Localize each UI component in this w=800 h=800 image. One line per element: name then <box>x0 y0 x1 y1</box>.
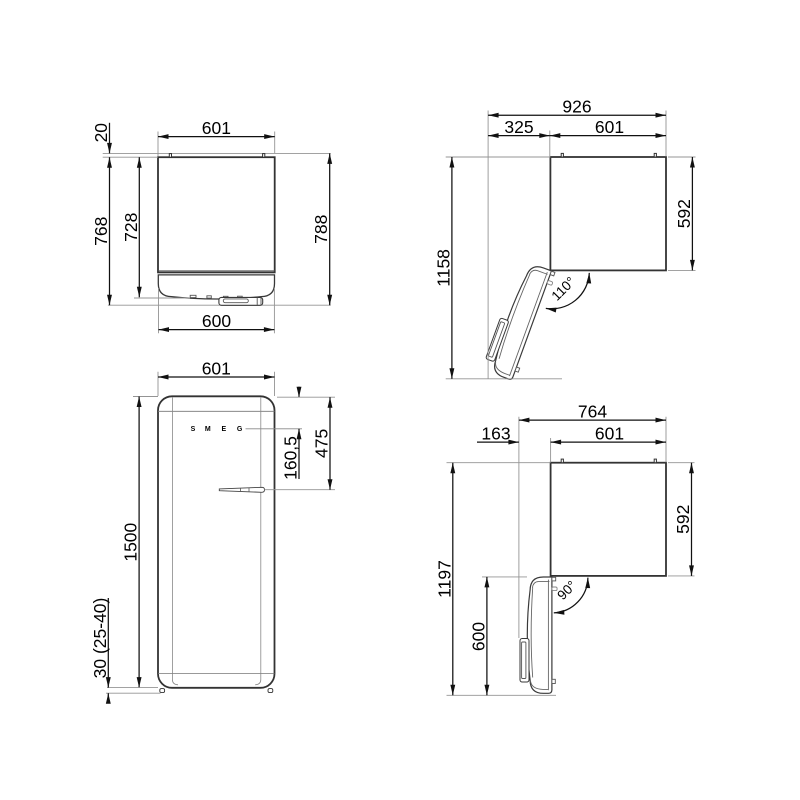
svg-text:1197: 1197 <box>434 560 454 598</box>
svg-text:926: 926 <box>562 97 591 117</box>
svg-text:1158: 1158 <box>433 249 453 287</box>
svg-text:M: M <box>205 426 211 433</box>
svg-text:325: 325 <box>504 117 533 137</box>
svg-text:20: 20 <box>91 123 111 143</box>
svg-text:600: 600 <box>468 622 488 651</box>
svg-text:600: 600 <box>202 311 231 331</box>
svg-text:601: 601 <box>595 424 624 444</box>
svg-text:764: 764 <box>578 402 607 422</box>
svg-text:601: 601 <box>202 118 231 138</box>
svg-text:475: 475 <box>312 429 332 458</box>
svg-text:592: 592 <box>673 505 693 534</box>
svg-text:768: 768 <box>91 217 111 246</box>
svg-text:788: 788 <box>311 215 331 244</box>
svg-text:728: 728 <box>121 213 141 242</box>
svg-text:592: 592 <box>674 199 694 228</box>
svg-text:601: 601 <box>202 359 231 379</box>
svg-text:G: G <box>237 426 243 433</box>
svg-text:163: 163 <box>481 424 510 444</box>
svg-text:601: 601 <box>595 117 624 137</box>
svg-text:160,5: 160,5 <box>281 436 301 480</box>
svg-text:S: S <box>191 426 196 433</box>
svg-text:30 (25-40): 30 (25-40) <box>90 598 110 679</box>
svg-text:E: E <box>221 426 226 433</box>
svg-text:1500: 1500 <box>121 522 141 561</box>
